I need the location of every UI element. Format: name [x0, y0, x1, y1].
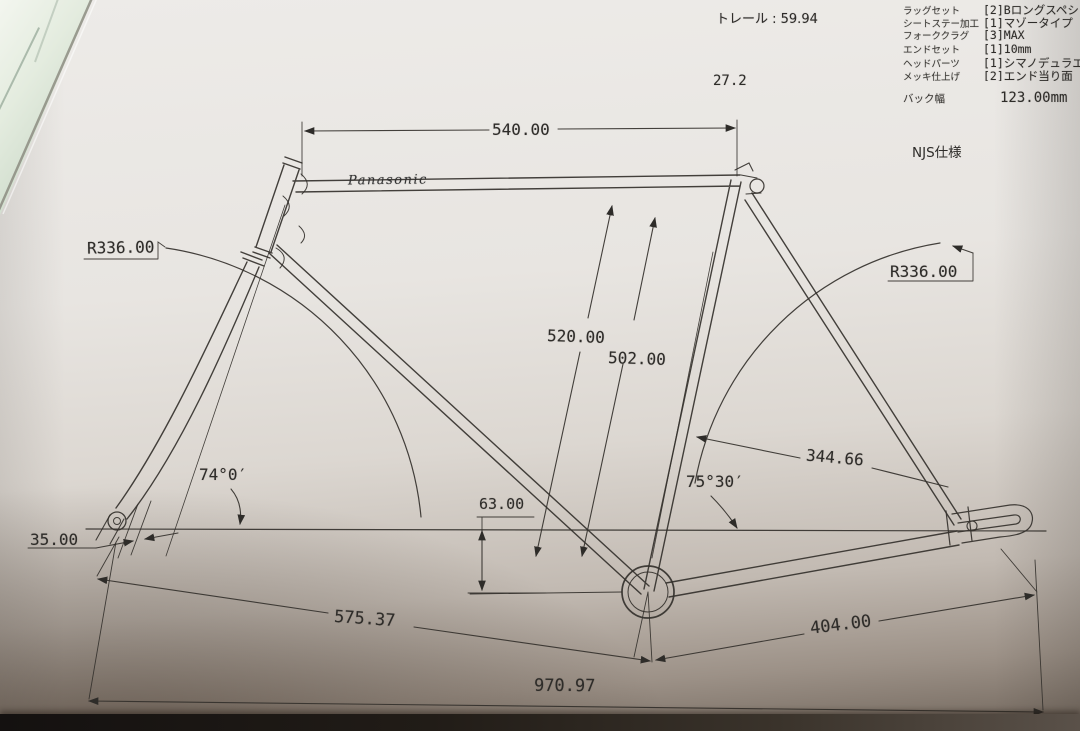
trail-label: トレール : 59.94	[716, 8, 818, 27]
spec-table: ラッグセット [2]Bロングスペシャル シートステー加工 [1]マゾータイプ フ…	[903, 2, 1080, 81]
dim-label-seat-stay: 344.66	[805, 446, 864, 470]
spec-row: エンドセット [1]10mm	[903, 42, 1080, 55]
dim-label-bb-drop: 63.00	[479, 495, 524, 513]
rear-spacing-value: 123.00mm	[1000, 90, 1067, 106]
spec-label: フォーククラグ	[903, 28, 983, 42]
spec-value: [2]エンド当り面	[983, 68, 1073, 81]
rear-spacing-label: バック幅	[903, 91, 1000, 106]
photo-of-frame-drawing: トレール : 59.94 27.2 540.00 Panasonic R336.…	[0, 0, 1080, 731]
dim-label-fork-offset: 35.00	[30, 530, 78, 549]
njs-standard-label: NJS仕様	[912, 141, 962, 161]
seatpost-diameter-label: 27.2	[713, 73, 747, 89]
head-angle-label: 74°0′	[199, 465, 247, 484]
rear-spacing-row: バック幅 123.00mm	[903, 90, 1080, 106]
spec-value: [3]MAX	[983, 28, 1025, 42]
spec-row: ヘッドパーツ [1]シマノデュラエース	[903, 55, 1080, 68]
dim-label-front-wheel-radius: R336.00	[87, 237, 155, 257]
labels-layer: トレール : 59.94 27.2 540.00 Panasonic R336.…	[0, 0, 1080, 731]
spec-label: ヘッドパーツ	[903, 56, 983, 70]
spec-label: メッキ仕上げ	[903, 69, 983, 81]
dim-label-seat-tube-520: 520.00	[547, 326, 605, 347]
spec-row: メッキ仕上げ [2]エンド当り面	[903, 68, 1080, 81]
dim-label-wheelbase: 970.97	[534, 676, 596, 697]
spec-value: [1]10mm	[983, 42, 1031, 56]
dim-label-rear-wheel-radius: R336.00	[890, 262, 957, 281]
dim-label-front-center: 575.37	[333, 607, 396, 631]
spec-row: シートステー加工 [1]マゾータイプ	[903, 15, 1080, 28]
dim-label-rear-center: 404.00	[809, 611, 872, 638]
table-edge-shadow	[0, 714, 1080, 731]
dim-label-seat-tube-502: 502.00	[608, 348, 666, 369]
spec-label: ラッグセット	[903, 3, 983, 17]
spec-row: ラッグセット [2]Bロングスペシャル	[903, 2, 1080, 15]
dim-label-top-tube: 540.00	[492, 120, 550, 139]
seat-angle-label: 75°30′	[686, 472, 744, 491]
panasonic-logo: Panasonic	[348, 172, 428, 188]
spec-label: エンドセット	[903, 42, 983, 56]
